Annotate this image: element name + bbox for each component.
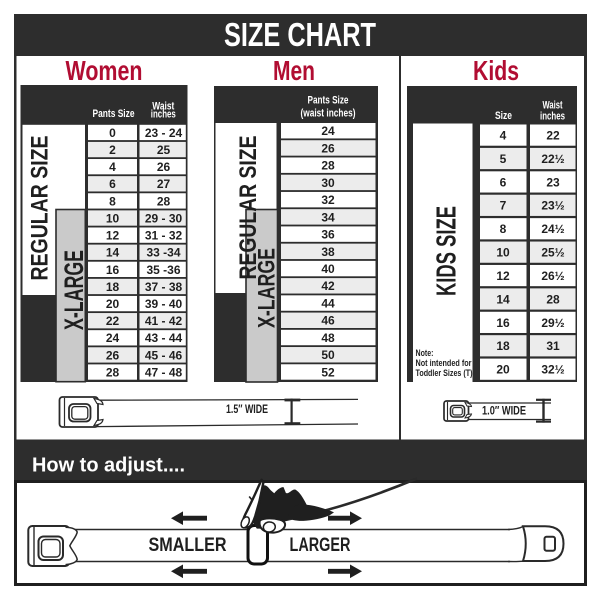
svg-text:43 - 44: 43 - 44 <box>145 331 183 345</box>
svg-text:inches: inches <box>540 111 565 123</box>
svg-text:28: 28 <box>546 292 560 306</box>
svg-text:Men: Men <box>273 55 315 86</box>
svg-text:KIDS SIZE: KIDS SIZE <box>431 206 462 296</box>
svg-text:29½: 29½ <box>541 316 564 330</box>
svg-text:42: 42 <box>321 279 335 293</box>
svg-text:22½: 22½ <box>541 152 564 166</box>
svg-text:Toddler Sizes (T): Toddler Sizes (T) <box>416 368 473 378</box>
svg-text:1.0″ WIDE: 1.0″ WIDE <box>482 404 526 418</box>
svg-text:24: 24 <box>106 331 120 345</box>
svg-text:26: 26 <box>321 141 335 155</box>
svg-text:0: 0 <box>109 126 116 140</box>
svg-text:6: 6 <box>109 177 116 191</box>
svg-text:Not intended for: Not intended for <box>416 358 472 368</box>
svg-text:12: 12 <box>106 229 120 243</box>
svg-text:46: 46 <box>321 314 335 328</box>
svg-text:Women: Women <box>66 55 143 86</box>
svg-text:18: 18 <box>106 280 120 294</box>
svg-text:23½: 23½ <box>541 199 564 213</box>
svg-text:24½: 24½ <box>541 222 564 236</box>
svg-text:26½: 26½ <box>541 269 564 283</box>
svg-text:41 - 42: 41 - 42 <box>145 314 183 328</box>
svg-text:10: 10 <box>106 211 120 225</box>
svg-text:8: 8 <box>109 194 116 208</box>
svg-text:10: 10 <box>496 246 510 260</box>
svg-text:22: 22 <box>106 314 120 328</box>
svg-text:32: 32 <box>321 193 335 207</box>
svg-text:Note:: Note: <box>416 348 434 358</box>
svg-text:28: 28 <box>321 159 335 173</box>
svg-text:50: 50 <box>321 348 335 362</box>
svg-text:12: 12 <box>496 269 510 283</box>
svg-text:47 - 48: 47 - 48 <box>145 365 183 379</box>
svg-text:23 - 24: 23 - 24 <box>145 126 183 140</box>
svg-text:33 -34: 33 -34 <box>146 246 180 260</box>
svg-text:How to adjust....: How to adjust.... <box>32 453 185 476</box>
svg-text:30: 30 <box>321 176 335 190</box>
svg-text:X-LARGE: X-LARGE <box>59 250 89 330</box>
svg-text:Pants Size: Pants Size <box>93 108 135 120</box>
svg-text:44: 44 <box>321 296 335 310</box>
svg-text:26: 26 <box>157 160 171 174</box>
svg-text:X-LARGE: X-LARGE <box>253 248 280 328</box>
svg-text:45 - 46: 45 - 46 <box>145 348 183 362</box>
svg-text:1.5″ WIDE: 1.5″ WIDE <box>226 402 268 416</box>
svg-text:29 - 30: 29 - 30 <box>145 211 183 225</box>
svg-text:22: 22 <box>546 129 560 143</box>
svg-text:24: 24 <box>321 124 335 138</box>
svg-text:26: 26 <box>106 348 120 362</box>
svg-text:20: 20 <box>496 363 510 377</box>
svg-text:REGULAR SIZE: REGULAR SIZE <box>27 136 54 281</box>
svg-text:inches: inches <box>151 109 176 121</box>
svg-text:Kids: Kids <box>473 55 519 86</box>
svg-text:31 - 32: 31 - 32 <box>145 229 183 243</box>
svg-text:34: 34 <box>321 210 335 224</box>
svg-text:25½: 25½ <box>541 246 564 260</box>
svg-text:Pants Size: Pants Size <box>308 95 349 107</box>
svg-text:35 -36: 35 -36 <box>146 263 180 277</box>
svg-text:14: 14 <box>496 292 510 306</box>
svg-text:SIZE CHART: SIZE CHART <box>224 16 376 53</box>
svg-text:36: 36 <box>321 228 335 242</box>
svg-text:40: 40 <box>321 262 335 276</box>
svg-text:48: 48 <box>321 331 335 345</box>
svg-text:16: 16 <box>496 316 510 330</box>
svg-text:25: 25 <box>157 143 171 157</box>
svg-text:27: 27 <box>157 177 171 191</box>
svg-text:2: 2 <box>109 143 116 157</box>
svg-text:39 - 40: 39 - 40 <box>145 297 183 311</box>
svg-text:6: 6 <box>500 175 507 189</box>
svg-text:31: 31 <box>546 339 560 353</box>
svg-text:52: 52 <box>321 365 335 379</box>
svg-text:SMALLER: SMALLER <box>149 535 227 556</box>
svg-text:14: 14 <box>106 246 120 260</box>
svg-text:4: 4 <box>109 160 116 174</box>
svg-text:20: 20 <box>106 297 120 311</box>
svg-text:7: 7 <box>500 199 507 213</box>
svg-text:32½: 32½ <box>541 363 564 377</box>
svg-text:Size: Size <box>495 110 512 122</box>
svg-text:23: 23 <box>546 175 560 189</box>
svg-text:28: 28 <box>106 365 120 379</box>
svg-text:16: 16 <box>106 263 120 277</box>
svg-text:38: 38 <box>321 245 335 259</box>
svg-text:(waist inches): (waist inches) <box>301 108 356 120</box>
svg-text:28: 28 <box>157 194 171 208</box>
svg-text:18: 18 <box>496 339 510 353</box>
svg-text:37 - 38: 37 - 38 <box>145 280 183 294</box>
svg-text:5: 5 <box>500 152 507 166</box>
svg-text:LARGER: LARGER <box>290 535 351 556</box>
svg-text:4: 4 <box>500 129 507 143</box>
svg-text:8: 8 <box>500 222 507 236</box>
